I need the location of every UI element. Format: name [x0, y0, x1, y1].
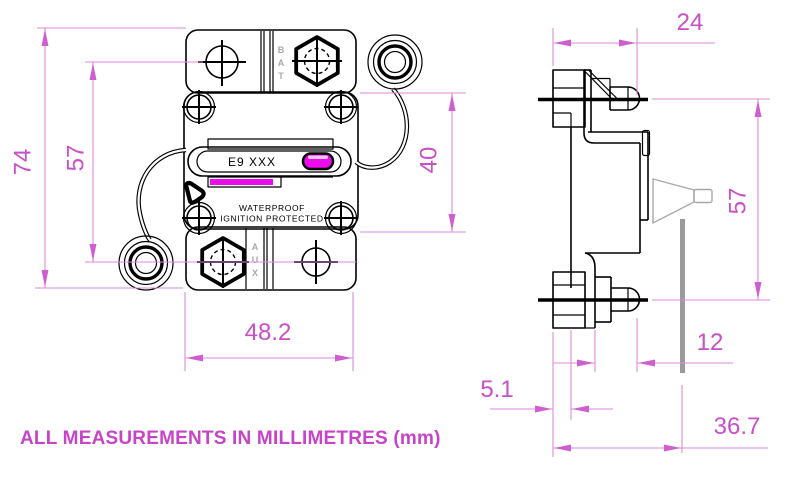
dim-label-57-front: 57: [63, 145, 90, 172]
top-flange: B A T: [186, 30, 356, 93]
dim-label-57-side: 57: [725, 188, 752, 215]
aux-stud: [694, 190, 712, 203]
bottom-left-terminal-cap: [119, 150, 186, 290]
lever-strip[interactable]: [210, 179, 273, 185]
dim-label-40: 40: [416, 147, 443, 174]
dim-bracket-5-1: 5.1: [480, 330, 613, 457]
corner-screw: [182, 90, 216, 124]
bottom-flange: A U X: [186, 227, 356, 290]
label-plate: E9 XXX: [188, 139, 351, 176]
dim-stud-span-57: 57: [652, 99, 770, 300]
dim-overall-depth-36-7: 36.7: [553, 385, 768, 453]
dim-stud-length-12: 12: [553, 318, 733, 372]
aux-letter: U: [252, 255, 259, 265]
aux-letter: A: [252, 242, 259, 252]
corner-screw: [182, 201, 216, 235]
dim-label-24: 24: [677, 9, 704, 36]
technical-drawing-page: B A T: [0, 0, 804, 477]
dim-label-12: 12: [697, 329, 724, 356]
units-caption: ALL MEASUREMENTS IN MILLIMETRES (mm): [20, 428, 500, 450]
top-right-terminal-cap: [356, 35, 422, 168]
bat-letter: T: [278, 71, 284, 81]
dim-label-36-7: 36.7: [714, 413, 761, 440]
cap-ring: [385, 52, 406, 73]
marking-waterproof: WATERPROOF: [239, 203, 305, 213]
cap-ring: [130, 247, 162, 279]
aux-cone: [653, 179, 694, 223]
aux-letter: X: [252, 268, 258, 278]
dim-label-5-1: 5.1: [480, 376, 513, 403]
trip-lever: [186, 177, 333, 203]
side-top-stud: [538, 87, 648, 110]
dim-width-48-2: 48.2: [185, 292, 353, 371]
panel-line: [680, 219, 685, 373]
reset-button-highlight: [308, 156, 328, 160]
side-view: [538, 70, 712, 373]
cap-ring: [368, 35, 422, 89]
dim-depth-24: 24: [553, 9, 715, 95]
top-hex-terminal: [292, 36, 342, 87]
cap-ring: [379, 46, 411, 78]
dim-label-48-2: 48.2: [245, 319, 292, 346]
bat-letter: B: [278, 45, 285, 55]
aux-terminal-side: [653, 179, 712, 223]
body-corner: [585, 253, 595, 268]
cap-ring: [136, 253, 157, 274]
dim-screw-span-40: 40: [360, 93, 466, 232]
bat-letter: A: [278, 58, 285, 68]
marking-ignition-protected: IGNITION PROTECTED: [220, 214, 323, 224]
cap-ring: [119, 236, 173, 290]
diagonal-brace: [589, 71, 618, 100]
model-code-text: E9 XXX: [228, 155, 276, 169]
front-view: B A T: [119, 30, 422, 290]
terminal-label-aux: A U X: [252, 242, 259, 278]
main-body: E9 XXX WATERPROOF IGNITION PROTECTED: [182, 90, 358, 235]
dim-label-74: 74: [10, 149, 37, 176]
cap-cord: [356, 89, 407, 168]
drawing-canvas: B A T: [0, 0, 804, 477]
cap-cord: [139, 150, 186, 240]
terminal-label-bat: B A T: [278, 45, 285, 81]
lever-latch[interactable]: [186, 183, 203, 203]
body-corner: [584, 133, 594, 143]
